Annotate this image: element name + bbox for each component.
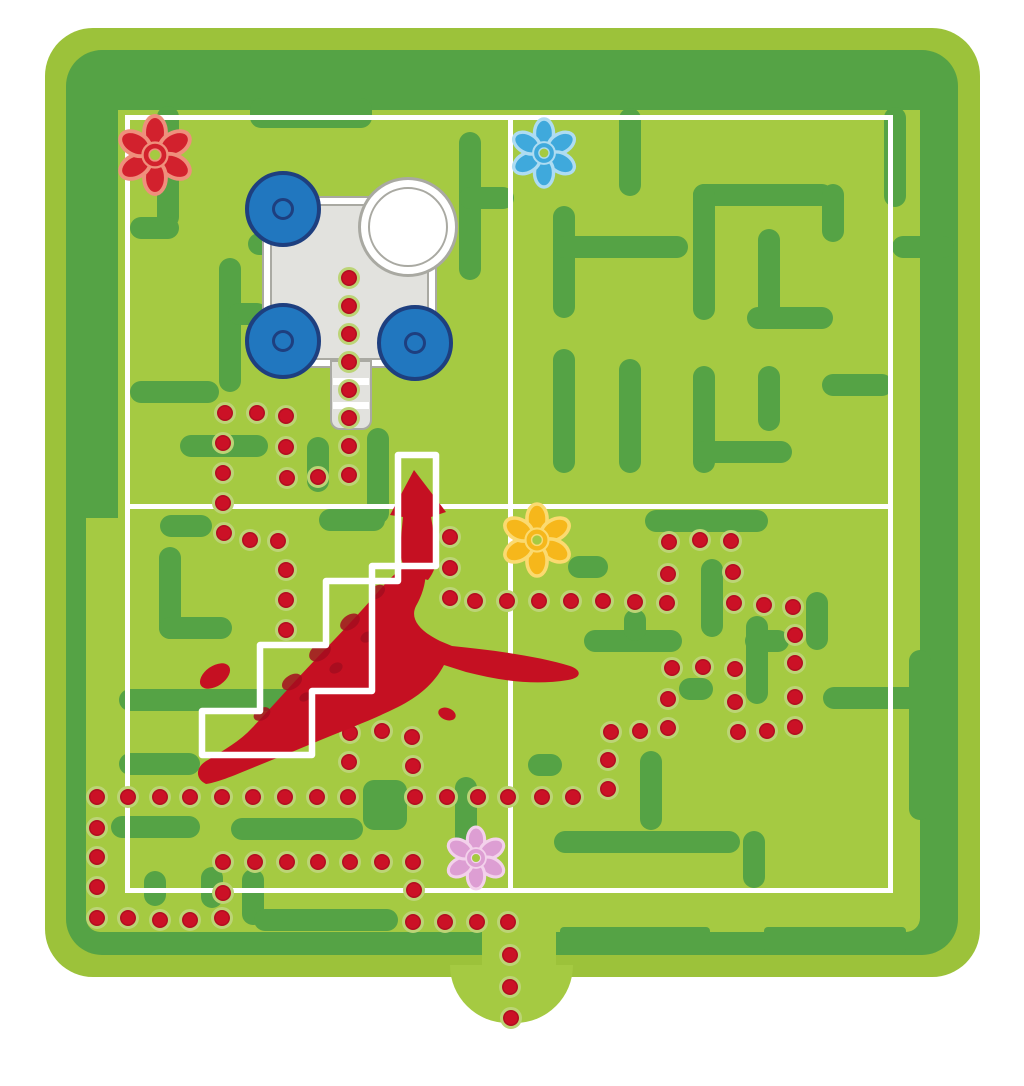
flower-center-hole — [471, 853, 480, 862]
flower-red — [116, 116, 194, 194]
maze-game-scene — [0, 0, 1024, 1086]
flower-center-hole — [532, 535, 543, 546]
flower-blue — [510, 119, 578, 187]
flower-center-hole — [149, 149, 161, 161]
flower-center-hole — [539, 148, 549, 158]
flower-yellow — [501, 504, 573, 576]
flower-pink — [445, 827, 507, 889]
flowers-layer — [0, 0, 1024, 1086]
